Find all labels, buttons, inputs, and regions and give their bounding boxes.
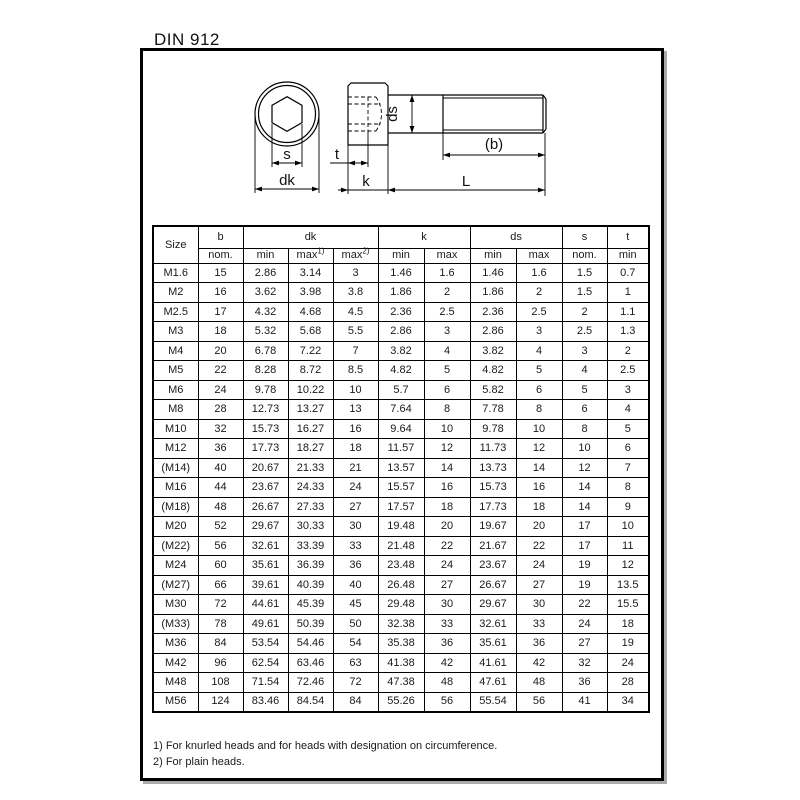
table-row: M2163.623.983.81.8621.8621.51 <box>153 283 649 303</box>
table-cell: 30 <box>333 517 378 537</box>
dim-label-k: k <box>362 173 370 190</box>
table-cell: 36 <box>562 673 607 693</box>
table-cell: 63 <box>333 653 378 673</box>
table-cell: 10 <box>562 439 607 459</box>
table-cell: 3 <box>424 322 470 342</box>
table-cell: 1.3 <box>607 322 649 342</box>
table-cell: 34 <box>607 692 649 712</box>
table-cell: 9.78 <box>470 419 516 439</box>
table-cell: 24.33 <box>288 478 333 498</box>
table-cell: 32 <box>562 653 607 673</box>
head-chamfer-circle <box>259 86 316 143</box>
table-cell: (M22) <box>153 536 198 556</box>
table-cell: 53.54 <box>243 634 288 654</box>
table-cell: 19.48 <box>378 517 424 537</box>
table-cell: 2 <box>562 302 607 322</box>
table-cell: 12 <box>516 439 562 459</box>
table-cell: 21.33 <box>288 458 333 478</box>
table-cell: 12 <box>562 458 607 478</box>
subheader-ds-max: max <box>516 248 562 263</box>
table-cell: 1.6 <box>424 263 470 283</box>
table-cell: 8 <box>562 419 607 439</box>
table-row: M5612483.4684.548455.265655.54564134 <box>153 692 649 712</box>
dim-label-t: t <box>335 146 340 163</box>
table-cell: 8.28 <box>243 361 288 381</box>
table-cell: 0.7 <box>607 263 649 283</box>
table-row: (M22)5632.6133.393321.482221.67221711 <box>153 536 649 556</box>
table-cell: 33 <box>333 536 378 556</box>
table-cell: 20 <box>198 341 243 361</box>
table-cell: 41.61 <box>470 653 516 673</box>
table-cell: 28 <box>198 400 243 420</box>
hex-socket <box>272 97 302 132</box>
table-cell: 50 <box>333 614 378 634</box>
table-cell: 4 <box>516 341 562 361</box>
table-cell: 5 <box>562 380 607 400</box>
footnote-2: 2) For plain heads. <box>153 754 497 770</box>
table-cell: 14 <box>562 478 607 498</box>
table-cell: 39.61 <box>243 575 288 595</box>
subheader-t-min: min <box>607 248 649 263</box>
table-row: M429662.5463.466341.384241.61423224 <box>153 653 649 673</box>
table-cell: 5.68 <box>288 322 333 342</box>
table-cell: 4.82 <box>470 361 516 381</box>
table-cell: 2.5 <box>607 361 649 381</box>
table-cell: 30.33 <box>288 517 333 537</box>
table-cell: 11.57 <box>378 439 424 459</box>
table-cell: 32.61 <box>470 614 516 634</box>
table-cell: 47.61 <box>470 673 516 693</box>
footnote-1: 1) For knurled heads and for heads with … <box>153 738 497 754</box>
table-cell: M42 <box>153 653 198 673</box>
table-header: Size b dk k ds s t nom. min max1) max2) … <box>153 226 649 263</box>
table-cell: M5 <box>153 361 198 381</box>
subheader-dk-max2: max2) <box>333 248 378 263</box>
table-cell: (M27) <box>153 575 198 595</box>
col-header-k: k <box>378 226 470 248</box>
table-cell: 84.54 <box>288 692 333 712</box>
subheader-dk-min: min <box>243 248 288 263</box>
table-cell: 72 <box>333 673 378 693</box>
table-cell: 56 <box>198 536 243 556</box>
table-cell: M24 <box>153 556 198 576</box>
table-cell: 18.27 <box>288 439 333 459</box>
table-cell: M3 <box>153 322 198 342</box>
table-cell: 36 <box>198 439 243 459</box>
table-cell: 5 <box>516 361 562 381</box>
table-cell: 124 <box>198 692 243 712</box>
table-row: M307244.6145.394529.483029.67302215.5 <box>153 595 649 615</box>
table-cell: 16 <box>424 478 470 498</box>
table-cell: 42 <box>516 653 562 673</box>
table-row: M103215.7316.27169.64109.781085 <box>153 419 649 439</box>
table-cell: 5 <box>607 419 649 439</box>
table-cell: 44.61 <box>243 595 288 615</box>
table-cell: 10 <box>516 419 562 439</box>
table-cell: 18 <box>516 497 562 517</box>
table-cell: 12 <box>607 556 649 576</box>
table-cell: 40 <box>198 458 243 478</box>
table-cell: 23.67 <box>470 556 516 576</box>
table-cell: 32 <box>198 419 243 439</box>
hidden-socket-lines <box>348 97 382 131</box>
table-cell: 1.6 <box>516 263 562 283</box>
table-cell: 30 <box>424 595 470 615</box>
table-cell: 7.22 <box>288 341 333 361</box>
table-cell: 9.64 <box>378 419 424 439</box>
table-cell: 35.61 <box>470 634 516 654</box>
table-row: M164423.6724.332415.571615.7316148 <box>153 478 649 498</box>
table-cell: 24 <box>333 478 378 498</box>
table-cell: 41.38 <box>378 653 424 673</box>
table-cell: 42 <box>424 653 470 673</box>
table-cell: 23.67 <box>243 478 288 498</box>
table-cell: 11.73 <box>470 439 516 459</box>
table-cell: 13 <box>333 400 378 420</box>
table-cell: 22 <box>198 361 243 381</box>
table-cell: 17 <box>562 536 607 556</box>
table-cell: 20 <box>516 517 562 537</box>
table-cell: 54.46 <box>288 634 333 654</box>
table-row: M4206.787.2273.8243.82432 <box>153 341 649 361</box>
table-cell: 17.73 <box>470 497 516 517</box>
table-cell: 7 <box>607 458 649 478</box>
table-cell: 3 <box>516 322 562 342</box>
table-cell: (M33) <box>153 614 198 634</box>
table-cell: 1.46 <box>470 263 516 283</box>
table-cell: 4 <box>562 361 607 381</box>
table-cell: 26.48 <box>378 575 424 595</box>
table-cell: M30 <box>153 595 198 615</box>
table-cell: 13.27 <box>288 400 333 420</box>
table-cell: 41 <box>562 692 607 712</box>
table-cell: 71.54 <box>243 673 288 693</box>
table-cell: 84 <box>198 634 243 654</box>
table-cell: 30 <box>516 595 562 615</box>
col-header-s: s <box>562 226 607 248</box>
dim-label-b: (b) <box>485 136 503 153</box>
table-cell: 10 <box>607 517 649 537</box>
table-cell: 21 <box>333 458 378 478</box>
table-cell: 35.61 <box>243 556 288 576</box>
table-cell: 96 <box>198 653 243 673</box>
table-cell: 6 <box>516 380 562 400</box>
table-cell: 72.46 <box>288 673 333 693</box>
table-cell: 5.32 <box>243 322 288 342</box>
table-cell: 2.36 <box>470 302 516 322</box>
page-title: DIN 912 <box>154 30 220 50</box>
dim-label-s: s <box>283 146 291 163</box>
table-cell: M8 <box>153 400 198 420</box>
table-cell: 8.72 <box>288 361 333 381</box>
table-cell: 33 <box>424 614 470 634</box>
table-cell: 45.39 <box>288 595 333 615</box>
table-cell: 5 <box>424 361 470 381</box>
table-cell: 27 <box>424 575 470 595</box>
head-outer-circle <box>255 82 319 146</box>
table-cell: 49.61 <box>243 614 288 634</box>
table-cell: 8 <box>516 400 562 420</box>
table-cell: 17.57 <box>378 497 424 517</box>
table-cell: 15.57 <box>378 478 424 498</box>
table-row: M82812.7313.27137.6487.78864 <box>153 400 649 420</box>
table-cell: 24 <box>562 614 607 634</box>
table-cell: 15 <box>198 263 243 283</box>
table-cell: 72 <box>198 595 243 615</box>
table-cell: 83.46 <box>243 692 288 712</box>
table-cell: 21.67 <box>470 536 516 556</box>
table-cell: 3 <box>607 380 649 400</box>
table-cell: M2.5 <box>153 302 198 322</box>
table-cell: 52 <box>198 517 243 537</box>
table-row: (M27)6639.6140.394026.482726.67271913.5 <box>153 575 649 595</box>
table-cell: 6.78 <box>243 341 288 361</box>
table-cell: 1.86 <box>470 283 516 303</box>
table-cell: 28 <box>607 673 649 693</box>
table-cell: M4 <box>153 341 198 361</box>
table-cell: 40 <box>333 575 378 595</box>
table-cell: 22 <box>516 536 562 556</box>
table-cell: 50.39 <box>288 614 333 634</box>
table-cell: 1.1 <box>607 302 649 322</box>
table-cell: 3.62 <box>243 283 288 303</box>
dim-label-L: L <box>462 173 470 190</box>
table-cell: 33.39 <box>288 536 333 556</box>
table-cell: 3.82 <box>378 341 424 361</box>
table-row: M4810871.5472.467247.384847.61483628 <box>153 673 649 693</box>
col-header-b: b <box>198 226 243 248</box>
table-cell: 19.67 <box>470 517 516 537</box>
table-cell: M56 <box>153 692 198 712</box>
table-cell: 29.67 <box>243 517 288 537</box>
table-cell: 3.82 <box>470 341 516 361</box>
table-cell: 2.5 <box>424 302 470 322</box>
table-cell: 2.36 <box>378 302 424 322</box>
col-header-dk: dk <box>243 226 378 248</box>
table-row: M1.6152.863.1431.461.61.461.61.50.7 <box>153 263 649 283</box>
table-cell: 84 <box>333 692 378 712</box>
table-cell: 62.54 <box>243 653 288 673</box>
table-cell: 8 <box>424 400 470 420</box>
table-cell: 29.67 <box>470 595 516 615</box>
table-cell: 40.39 <box>288 575 333 595</box>
table-cell: 16 <box>198 283 243 303</box>
table-cell: 6 <box>562 400 607 420</box>
table-cell: 36.39 <box>288 556 333 576</box>
table-cell: 17.73 <box>243 439 288 459</box>
footnote-ref-1: 1) <box>317 247 324 256</box>
table-cell: 4.5 <box>333 302 378 322</box>
table-cell: (M14) <box>153 458 198 478</box>
subheader-ds-min: min <box>470 248 516 263</box>
table-cell: 56 <box>516 692 562 712</box>
table-cell: 18 <box>198 322 243 342</box>
table-cell: 2.86 <box>243 263 288 283</box>
table-cell: 32.61 <box>243 536 288 556</box>
table-cell: 3.98 <box>288 283 333 303</box>
table-cell: 11 <box>607 536 649 556</box>
subheader-k-max: max <box>424 248 470 263</box>
table-row: M368453.5454.465435.383635.61362719 <box>153 634 649 654</box>
table-cell: 24 <box>424 556 470 576</box>
table-cell: 7 <box>333 341 378 361</box>
table-cell: 56 <box>424 692 470 712</box>
table-cell: 17 <box>198 302 243 322</box>
table-cell: 23.48 <box>378 556 424 576</box>
table-cell: 48 <box>198 497 243 517</box>
table-cell: 10.22 <box>288 380 333 400</box>
table-cell: 18 <box>333 439 378 459</box>
table-cell: M16 <box>153 478 198 498</box>
table-cell: M6 <box>153 380 198 400</box>
table-cell: 35.38 <box>378 634 424 654</box>
table-cell: 48 <box>516 673 562 693</box>
table-cell: 1 <box>607 283 649 303</box>
table-cell: 20 <box>424 517 470 537</box>
table-cell: 4 <box>607 400 649 420</box>
table-cell: 24 <box>607 653 649 673</box>
table-cell: 8 <box>607 478 649 498</box>
footnotes: 1) For knurled heads and for heads with … <box>153 738 497 770</box>
table-cell: 14 <box>516 458 562 478</box>
table-cell: (M18) <box>153 497 198 517</box>
table-cell: 55.26 <box>378 692 424 712</box>
table-cell: 26.67 <box>243 497 288 517</box>
table-row: (M18)4826.6727.332717.571817.7318149 <box>153 497 649 517</box>
col-header-size: Size <box>153 226 198 263</box>
table-cell: 66 <box>198 575 243 595</box>
table-cell: 3.8 <box>333 283 378 303</box>
table-cell: 4.32 <box>243 302 288 322</box>
table-cell: 6 <box>607 439 649 459</box>
table-cell: 55.54 <box>470 692 516 712</box>
table-cell: 17 <box>562 517 607 537</box>
dim-label-ds: ds <box>384 106 401 122</box>
table-cell: 15.73 <box>470 478 516 498</box>
table-cell: 10 <box>333 380 378 400</box>
table-cell: 27.33 <box>288 497 333 517</box>
table-cell: 14 <box>562 497 607 517</box>
table-cell: 3 <box>333 263 378 283</box>
table-cell: 15.73 <box>243 419 288 439</box>
subheader-k-min: min <box>378 248 424 263</box>
table-cell: 20.67 <box>243 458 288 478</box>
front-view <box>255 82 319 146</box>
table-cell: 1.86 <box>378 283 424 303</box>
table-row: M205229.6730.333019.482019.67201710 <box>153 517 649 537</box>
table-cell: 2.86 <box>378 322 424 342</box>
table-cell: M12 <box>153 439 198 459</box>
dimension-table: Size b dk k ds s t nom. min max1) max2) … <box>152 225 650 713</box>
table-cell: 2.86 <box>470 322 516 342</box>
table-cell: 1.46 <box>378 263 424 283</box>
table-cell: 24 <box>516 556 562 576</box>
table-cell: 26.67 <box>470 575 516 595</box>
table-cell: 45 <box>333 595 378 615</box>
table-cell: 8.5 <box>333 361 378 381</box>
side-view <box>348 83 546 145</box>
footnote-ref-2: 2) <box>362 247 369 256</box>
table-row: M2.5174.324.684.52.362.52.362.521.1 <box>153 302 649 322</box>
table-cell: 1.5 <box>562 263 607 283</box>
table-cell: 33 <box>516 614 562 634</box>
table-cell: 36 <box>333 556 378 576</box>
table-cell: 19 <box>562 575 607 595</box>
table-cell: 16 <box>333 419 378 439</box>
table-cell: 27 <box>333 497 378 517</box>
table-cell: 60 <box>198 556 243 576</box>
table-cell: 7.64 <box>378 400 424 420</box>
table-cell: 7.78 <box>470 400 516 420</box>
table-row: M5228.288.728.54.8254.82542.5 <box>153 361 649 381</box>
table-cell: 2 <box>516 283 562 303</box>
table-cell: 18 <box>424 497 470 517</box>
table-cell: 32.38 <box>378 614 424 634</box>
table-cell: 5.82 <box>470 380 516 400</box>
subheader-dk-max1: max1) <box>288 248 333 263</box>
table-cell: 2.5 <box>562 322 607 342</box>
table-row: (M33)7849.6150.395032.383332.61332418 <box>153 614 649 634</box>
table-row: M3185.325.685.52.8632.8632.51.3 <box>153 322 649 342</box>
subheader-s-nom: nom. <box>562 248 607 263</box>
page: { "page": { "title": "DIN 912", "footnot… <box>0 0 800 800</box>
table-cell: 13.5 <box>607 575 649 595</box>
dim-label-dk: dk <box>279 172 295 189</box>
table-cell: M36 <box>153 634 198 654</box>
table-cell: 63.46 <box>288 653 333 673</box>
table-cell: 6 <box>424 380 470 400</box>
table-cell: 13.57 <box>378 458 424 478</box>
table-row: (M14)4020.6721.332113.571413.7314127 <box>153 458 649 478</box>
table-cell: 21.48 <box>378 536 424 556</box>
table-cell: 19 <box>562 556 607 576</box>
col-header-ds: ds <box>470 226 562 248</box>
subheader-b-nom: nom. <box>198 248 243 263</box>
table-cell: 4.68 <box>288 302 333 322</box>
table-cell: 9.78 <box>243 380 288 400</box>
table-cell: 47.38 <box>378 673 424 693</box>
table-cell: 108 <box>198 673 243 693</box>
table-cell: 3 <box>562 341 607 361</box>
table-cell: 13.73 <box>470 458 516 478</box>
table-cell: 12.73 <box>243 400 288 420</box>
table-cell: 10 <box>424 419 470 439</box>
table-cell: M1.6 <box>153 263 198 283</box>
table-cell: 3.14 <box>288 263 333 283</box>
technical-drawing: s dk <box>225 55 565 215</box>
table-cell: M10 <box>153 419 198 439</box>
table-cell: 16.27 <box>288 419 333 439</box>
table-cell: 48 <box>424 673 470 693</box>
col-header-t: t <box>607 226 649 248</box>
table-cell: 5.7 <box>378 380 424 400</box>
table-cell: 27 <box>562 634 607 654</box>
table-cell: 2.5 <box>516 302 562 322</box>
table-body: M1.6152.863.1431.461.61.461.61.50.7M2163… <box>153 263 649 712</box>
table-cell: 54 <box>333 634 378 654</box>
table-cell: 19 <box>607 634 649 654</box>
table-cell: 27 <box>516 575 562 595</box>
table-cell: 22 <box>424 536 470 556</box>
table-cell: 22 <box>562 595 607 615</box>
table-cell: 2 <box>424 283 470 303</box>
table-cell: 18 <box>607 614 649 634</box>
table-row: M246035.6136.393623.482423.67241912 <box>153 556 649 576</box>
table-cell: 14 <box>424 458 470 478</box>
table-cell: M2 <box>153 283 198 303</box>
table-cell: 16 <box>516 478 562 498</box>
table-row: M6249.7810.22105.765.82653 <box>153 380 649 400</box>
